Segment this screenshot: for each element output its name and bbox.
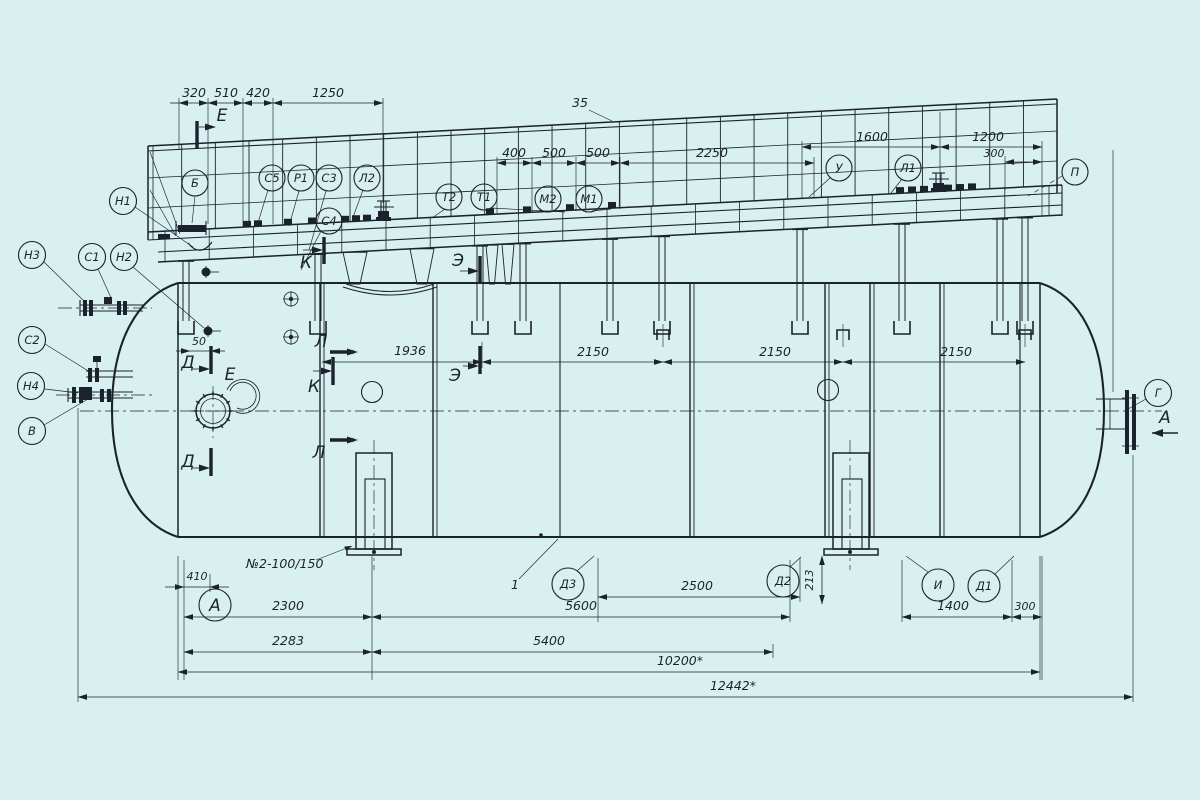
note-35: 35 bbox=[572, 95, 588, 110]
section-l-upper-label: Л bbox=[314, 332, 328, 352]
tag-d1: Д1 bbox=[968, 556, 1014, 602]
svg-text:Н3: Н3 bbox=[24, 248, 40, 262]
platform-end-valve bbox=[176, 221, 206, 235]
tag-n4: Н4 bbox=[18, 373, 79, 400]
dip-pipes bbox=[178, 218, 1033, 334]
svg-text:1250: 1250 bbox=[312, 85, 344, 100]
tag-u: У bbox=[809, 155, 852, 197]
tag-d3: Д3 bbox=[552, 556, 594, 600]
right-head bbox=[1040, 283, 1104, 537]
svg-text:Г: Г bbox=[1155, 386, 1163, 400]
view-a-arrow-right: А bbox=[1152, 408, 1178, 437]
svg-text:Л2: Л2 bbox=[358, 171, 375, 185]
section-d-upper-label: Д bbox=[180, 353, 194, 373]
saddle-supports bbox=[347, 440, 878, 570]
svg-text:У: У bbox=[835, 161, 843, 175]
target-fittings bbox=[283, 291, 299, 345]
deck-valve-right bbox=[929, 173, 949, 192]
svg-text:500: 500 bbox=[542, 145, 566, 160]
tag-c5: С5 bbox=[257, 165, 285, 226]
detail-e-label: Е bbox=[225, 365, 236, 385]
tag-n1: Н1 bbox=[110, 188, 194, 248]
svg-text:Д2: Д2 bbox=[774, 574, 791, 588]
svg-text:Н4: Н4 bbox=[23, 379, 39, 393]
vessel-drawing: А Е bbox=[0, 0, 1200, 800]
svg-text:С4: С4 bbox=[321, 214, 336, 228]
dim-chain-shell: 1936 2150 2150 2150 50 bbox=[176, 335, 1025, 368]
svg-text:2250: 2250 bbox=[696, 145, 728, 160]
svg-text:12442*: 12442* bbox=[710, 678, 756, 693]
section-e2-upper-label: Э bbox=[451, 251, 464, 271]
vessel-shell bbox=[80, 283, 1162, 537]
svg-text:5600: 5600 bbox=[565, 598, 597, 613]
svg-text:213: 213 bbox=[803, 570, 816, 591]
view-a-label-right: А bbox=[1158, 408, 1171, 428]
svg-text:Б: Б bbox=[191, 176, 199, 190]
svg-text:Д3: Д3 bbox=[559, 577, 576, 591]
svg-text:2500: 2500 bbox=[681, 578, 713, 593]
section-marks: Е Д Д К К Л Л Э Э bbox=[180, 106, 480, 476]
svg-text:10200*: 10200* bbox=[657, 653, 703, 668]
section-l-lower-label: Л bbox=[312, 443, 326, 463]
svg-text:400: 400 bbox=[502, 145, 526, 160]
svg-text:5400: 5400 bbox=[533, 633, 565, 648]
tag-c1: С1 bbox=[79, 244, 113, 301]
svg-text:2283: 2283 bbox=[272, 633, 304, 648]
svg-text:410: 410 bbox=[187, 570, 208, 583]
svg-text:2150: 2150 bbox=[577, 344, 609, 359]
svg-text:1400: 1400 bbox=[937, 598, 969, 613]
item-number-note: 1 bbox=[511, 577, 519, 592]
tag-m2: М2 bbox=[535, 186, 571, 212]
svg-text:М2: М2 bbox=[539, 192, 556, 206]
tag-t2: Т2 bbox=[432, 184, 462, 218]
section-e2-lower-label: Э bbox=[448, 366, 461, 386]
tag-d2: Д2 bbox=[767, 557, 801, 597]
tag-c2: С2 bbox=[19, 327, 91, 373]
svg-text:С5: С5 bbox=[264, 171, 279, 185]
svg-text:Р1: Р1 bbox=[294, 171, 308, 185]
svg-text:510: 510 bbox=[214, 85, 238, 100]
svg-text:2300: 2300 bbox=[272, 598, 304, 613]
svg-text:В: В bbox=[28, 424, 36, 438]
support-spec-note: №2-100/150 bbox=[245, 556, 323, 571]
tag-pp: П bbox=[1028, 159, 1088, 196]
svg-text:500: 500 bbox=[586, 145, 610, 160]
svg-text:2150: 2150 bbox=[940, 344, 972, 359]
small-valves bbox=[202, 266, 222, 337]
manhole bbox=[190, 386, 238, 438]
tag-l1: Л1 bbox=[891, 155, 921, 193]
notes: №2-100/150 1 bbox=[245, 533, 558, 592]
svg-text:Т1: Т1 bbox=[477, 190, 491, 204]
tag-l2: Л2 bbox=[352, 165, 380, 220]
svg-text:50: 50 bbox=[192, 335, 206, 348]
svg-text:С3: С3 bbox=[321, 171, 336, 185]
svg-text:П: П bbox=[1071, 165, 1080, 179]
view-a-circle: А bbox=[199, 589, 231, 621]
svg-text:Д1: Д1 bbox=[975, 579, 992, 593]
svg-text:1936: 1936 bbox=[394, 343, 426, 358]
tag-i: И bbox=[906, 556, 954, 601]
svg-text:С2: С2 bbox=[24, 333, 39, 347]
section-d-lower-label: Д bbox=[180, 452, 194, 472]
tag-v: В bbox=[19, 399, 89, 445]
dim-chain-bottom: 410 2500 213 2300 5600 1400 300 2283 540… bbox=[78, 408, 1133, 702]
svg-text:2150: 2150 bbox=[759, 344, 791, 359]
svg-text:Н2: Н2 bbox=[116, 250, 132, 264]
svg-text:Л1: Л1 bbox=[899, 161, 916, 175]
dimensions: 320 510 420 1250 400 500 500 2250 35 bbox=[78, 85, 1133, 702]
deck-fittings bbox=[243, 183, 976, 226]
svg-text:И: И bbox=[934, 578, 943, 592]
left-head bbox=[112, 283, 178, 537]
section-e-label: Е bbox=[217, 106, 228, 126]
svg-text:1200: 1200 bbox=[972, 129, 1004, 144]
drawing-canvas: А Е bbox=[0, 0, 1200, 800]
svg-text:С1: С1 bbox=[84, 250, 99, 264]
tag-n2: Н2 bbox=[111, 244, 205, 329]
svg-text:420: 420 bbox=[246, 85, 270, 100]
top-wear-pad bbox=[343, 284, 437, 295]
svg-text:Н1: Н1 bbox=[115, 194, 131, 208]
svg-text:А: А bbox=[208, 596, 221, 616]
section-k-lower-label: К bbox=[308, 377, 321, 397]
svg-text:М1: М1 bbox=[580, 192, 597, 206]
section-k-upper-label: К bbox=[300, 253, 313, 273]
tag-b: Б bbox=[182, 170, 208, 223]
svg-text:1600: 1600 bbox=[856, 129, 888, 144]
tag-n3: Н3 bbox=[19, 242, 87, 304]
svg-text:Т2: Т2 bbox=[442, 190, 456, 204]
svg-text:320: 320 bbox=[182, 85, 206, 100]
platform-nozzle-tags: Б С5 Р1 С3 Л2 С4 Т2 Т1 М2 М1 У Л1 П bbox=[182, 155, 1088, 270]
lifting-lugs bbox=[657, 324, 1031, 347]
tag-p1: Р1 bbox=[288, 165, 314, 226]
svg-text:300: 300 bbox=[984, 147, 1005, 160]
svg-text:300: 300 bbox=[1015, 600, 1036, 613]
